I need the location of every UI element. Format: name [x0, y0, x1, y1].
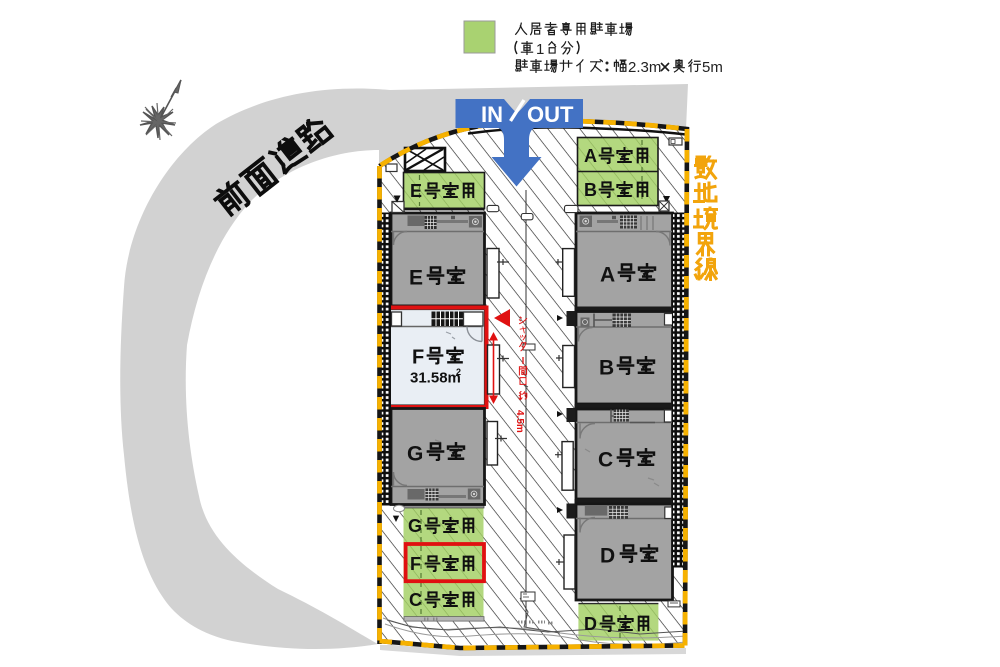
svg-text:5m: 5m [702, 59, 723, 76]
svg-text:C: C [598, 449, 613, 472]
svg-text:G: G [407, 443, 423, 466]
svg-text:D: D [600, 545, 615, 568]
svg-text:E: E [410, 181, 422, 201]
svg-text:B: B [599, 357, 614, 380]
svg-text:F: F [410, 554, 421, 574]
svg-text:G: G [408, 516, 422, 536]
svg-text:31.58m: 31.58m [410, 370, 461, 387]
svg-text:A: A [600, 264, 615, 287]
svg-text:4.5m: 4.5m [514, 410, 525, 433]
svg-text:A: A [584, 146, 597, 166]
svg-text:IN: IN [481, 102, 503, 127]
svg-text:F: F [412, 347, 424, 369]
svg-text:C: C [409, 590, 422, 610]
svg-text:1: 1 [536, 41, 544, 58]
svg-text:2: 2 [456, 367, 461, 377]
svg-text:D: D [584, 614, 597, 634]
svg-text:B: B [584, 180, 597, 200]
svg-text:OUT: OUT [527, 102, 574, 127]
svg-text:E: E [409, 267, 423, 290]
svg-text:2.3m: 2.3m [628, 59, 661, 76]
